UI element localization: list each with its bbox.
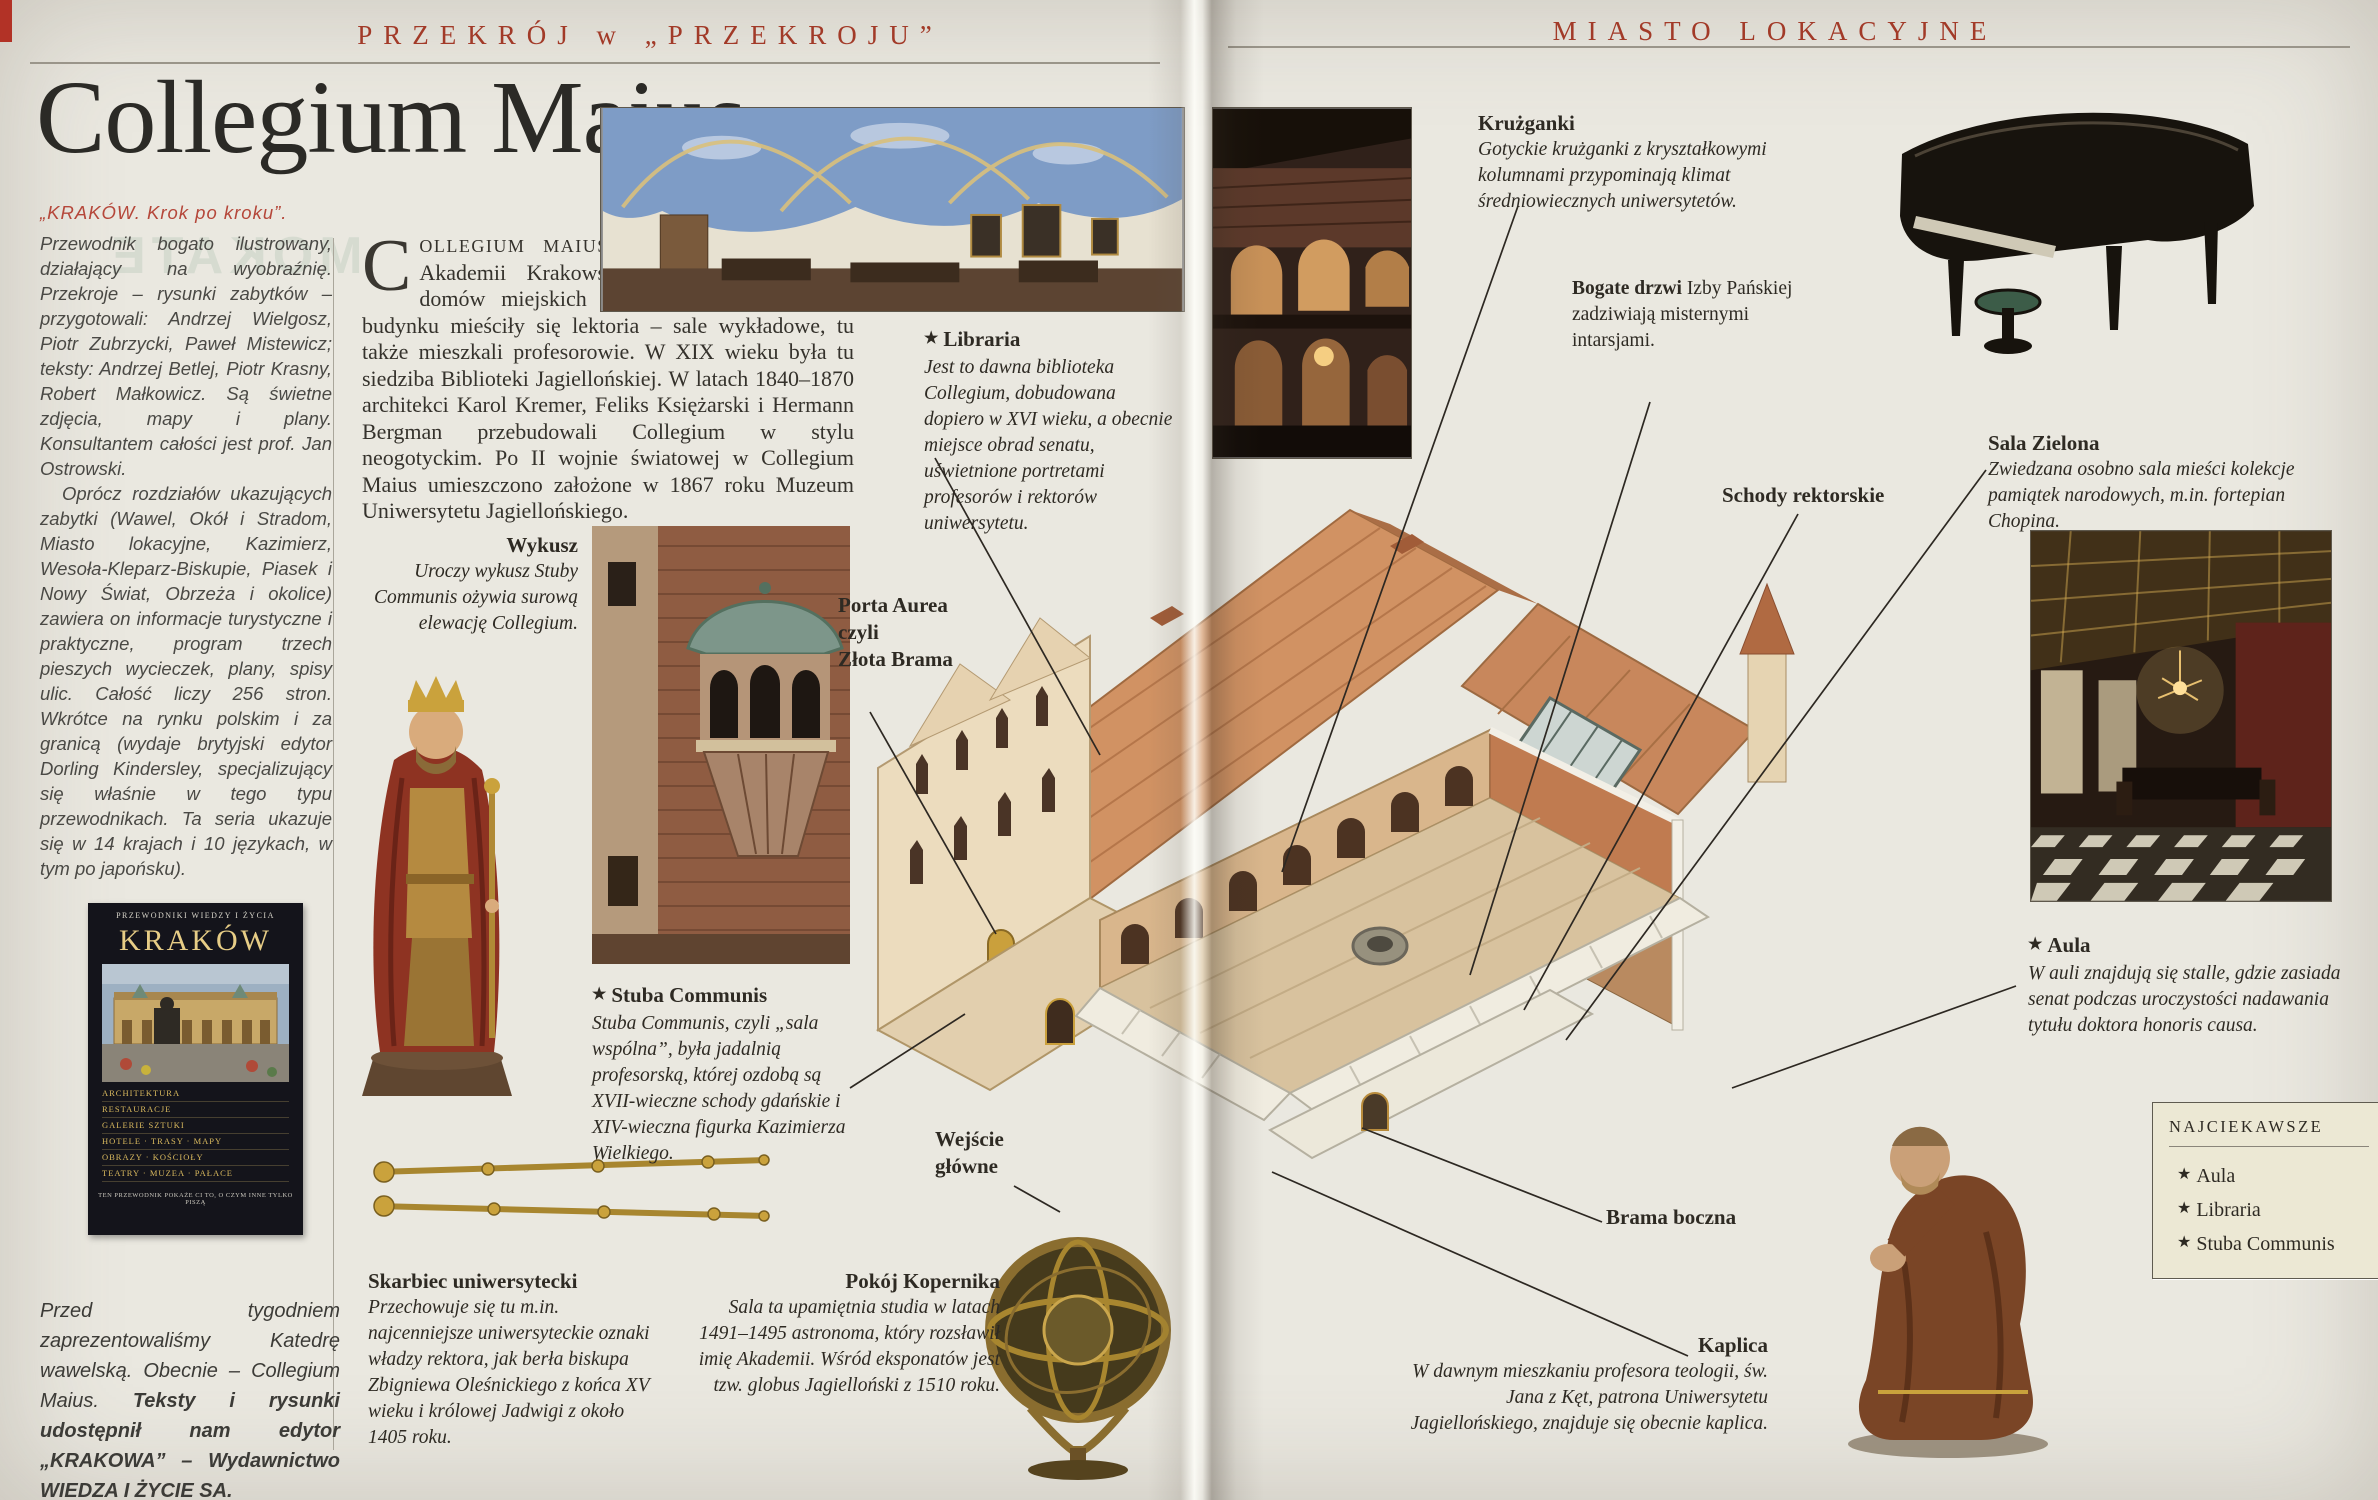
caption-skarbiec-body: Przechowuje się tu m.in. najcenniejsze u… xyxy=(368,1295,660,1451)
caption-stuba-title: Stuba Communis xyxy=(611,983,767,1007)
review-paragraph-1: Przewodnik bogato ilustrowany, działając… xyxy=(40,231,332,481)
caption-sala-zielona: Sala Zielona Zwiedzana osobno sala mieśc… xyxy=(1988,430,2340,535)
caption-kaplica-title: Kaplica xyxy=(1390,1332,1768,1359)
caption-sala-zielona-title: Sala Zielona xyxy=(1988,430,2340,457)
caption-kopernika-body: Sala ta upamiętnia studia w latach 1491–… xyxy=(680,1295,1000,1399)
header-rule-right xyxy=(1228,46,2350,48)
caption-libraria: ★Libraria Jest to dawna biblioteka Colle… xyxy=(924,326,1176,537)
caption-bogate-drzwi-title: Bogate drzwi xyxy=(1572,278,1682,299)
label-porta-aurea: Porta Aurea czyli Złota Brama xyxy=(838,592,953,673)
caption-kruzganki-title: Krużganki xyxy=(1478,110,1768,137)
libraria-photo xyxy=(600,107,1185,312)
caption-stuba-body: Stuba Communis, czyli „sala wspólna”, by… xyxy=(592,1011,860,1167)
magazine-spread: MOKATE PRZEKRÓJ w „PRZEKROJU” MIASTO LOK… xyxy=(0,0,2378,1500)
highlights-rule xyxy=(2169,1146,2369,1147)
caption-sala-zielona-body: Zwiedzana osobno sala mieści kolekcje pa… xyxy=(1988,457,2340,535)
book-series-label: PRZEWODNIKI WIEDZY I ŻYCIA xyxy=(88,903,303,920)
label-brama-boczna: Brama boczna xyxy=(1606,1204,1736,1231)
chopin-piano-image xyxy=(1860,58,2280,358)
caption-kaplica-body: W dawnym mieszkaniu profesora teologii, … xyxy=(1390,1359,1768,1437)
caption-aula-title: Aula xyxy=(2047,933,2090,957)
section-header-left: PRZEKRÓJ w „PRZEKROJU” xyxy=(280,20,1020,51)
wykusz-tower-art xyxy=(592,526,850,964)
sala-zielona-photo xyxy=(2030,530,2332,902)
review-column: „KRAKÓW. Krok po kroku”. Przewodnik boga… xyxy=(40,200,332,881)
caption-bogate-drzwi-body: zadziwiają misternymi intarsjami. xyxy=(1572,304,1749,351)
highlights-item: ★Stuba Communis xyxy=(2169,1228,2369,1262)
caption-wykusz: Wykusz Uroczy wykusz Stuby Communis ożyw… xyxy=(370,532,578,637)
cutaway-drawing-art xyxy=(850,468,1865,1313)
caption-libraria-title: Libraria xyxy=(943,327,1020,351)
book-tagline: TEN PRZEWODNIK POKAŻE CI TO, O CZYM INNE… xyxy=(88,1192,303,1206)
highlights-item: ★Aula xyxy=(2169,1160,2369,1194)
book-cover-photo xyxy=(102,964,289,1082)
drop-cap: C xyxy=(362,232,419,296)
caption-stuba-communis: ★Stuba Communis Stuba Communis, czyli „s… xyxy=(592,982,860,1167)
kruzganki-photo-art xyxy=(1213,108,1411,458)
book-category: RESTAURACJE xyxy=(102,1102,289,1118)
piano-art xyxy=(1860,58,2280,358)
review-paragraph-2: Oprócz rozdziałów ukazujących zabytki (W… xyxy=(40,481,332,881)
king-statue-image xyxy=(332,638,537,1103)
highlights-item: ★Libraria xyxy=(2169,1194,2369,1228)
editor-note: Przed tygodniem zaprezentowaliśmy Katedr… xyxy=(40,1296,340,1500)
label-wejscie-glowne: Wejście główne xyxy=(935,1126,1004,1180)
book-category: TEATRY · MUZEA · PAŁACE xyxy=(102,1166,289,1182)
book-category: HOTELE · TRASY · MAPY xyxy=(102,1134,289,1150)
intro-smallcaps: OLLEGIUM MAIUS xyxy=(419,236,608,256)
caption-aula: ★Aula W auli znajdują się stalle, gdzie … xyxy=(2028,932,2363,1039)
libraria-photo-art xyxy=(601,108,1184,311)
review-lead: „KRAKÓW. Krok po kroku”. xyxy=(40,200,332,225)
caption-bogate-drzwi: Bogate drzwi Izby Pańskiej zadziwiają mi… xyxy=(1572,276,1822,354)
highlights-title: NAJCIEKAWSZE xyxy=(2169,1117,2369,1137)
caption-bogate-drzwi-subject: Izby Pańskiej xyxy=(1682,278,1792,299)
book-title: KRAKÓW xyxy=(88,924,303,958)
book-cover: PRZEWODNIKI WIEDZY I ŻYCIA KRAKÓW xyxy=(88,903,303,1235)
book-category: GALERIE SZTUKI xyxy=(102,1118,289,1134)
star-icon: ★ xyxy=(2177,1200,2191,1217)
label-schody-rektorskie: Schody rektorskie xyxy=(1722,482,1884,509)
star-icon: ★ xyxy=(924,330,938,347)
star-icon: ★ xyxy=(2177,1166,2191,1183)
caption-skarbiec-title: Skarbiec uniwersytecki xyxy=(368,1268,660,1295)
book-category: OBRAZY · KOŚCIOŁY xyxy=(102,1150,289,1166)
section-header-right: MIASTO LOKACYJNE xyxy=(1420,16,2130,47)
caption-libraria-body: Jest to dawna biblioteka Collegium, dobu… xyxy=(924,355,1176,537)
book-category-list: ARCHITEKTURA RESTAURACJE GALERIE SZTUKI … xyxy=(88,1086,303,1182)
star-icon: ★ xyxy=(2177,1234,2191,1251)
caption-aula-body: W auli znajdują się stalle, gdzie zasiad… xyxy=(2028,961,2363,1039)
caption-wykusz-title: Wykusz xyxy=(370,532,578,559)
market-square-illustration xyxy=(102,964,289,1082)
book-category: ARCHITEKTURA xyxy=(102,1086,289,1102)
caption-kopernika-title: Pokój Kopernika xyxy=(680,1268,1000,1295)
kruzganki-photo xyxy=(1212,107,1412,459)
star-icon: ★ xyxy=(592,986,606,1003)
caption-kaplica: Kaplica W dawnym mieszkaniu profesora te… xyxy=(1390,1332,1768,1437)
caption-pokoj-kopernika: Pokój Kopernika Sala ta upamiętnia studi… xyxy=(680,1268,1000,1399)
page-corner-mark xyxy=(0,0,12,42)
caption-skarbiec: Skarbiec uniwersytecki Przechowuje się t… xyxy=(368,1268,660,1451)
caption-kruzganki-body: Gotyckie krużganki z kryształkowymi kolu… xyxy=(1478,137,1768,215)
caption-wykusz-body: Uroczy wykusz Stuby Communis ożywia suro… xyxy=(370,559,578,637)
caption-kruzganki: Krużganki Gotyckie krużganki z kryształk… xyxy=(1478,110,1768,215)
king-statue-art xyxy=(332,638,537,1103)
collegium-cutaway-drawing xyxy=(850,468,1865,1313)
wykusz-tower-image xyxy=(592,526,850,964)
highlights-box: NAJCIEKAWSZE ★Aula ★Libraria ★Stuba Comm… xyxy=(2152,1102,2378,1279)
sala-zielona-photo-art xyxy=(2031,531,2331,901)
star-icon: ★ xyxy=(2028,936,2042,953)
